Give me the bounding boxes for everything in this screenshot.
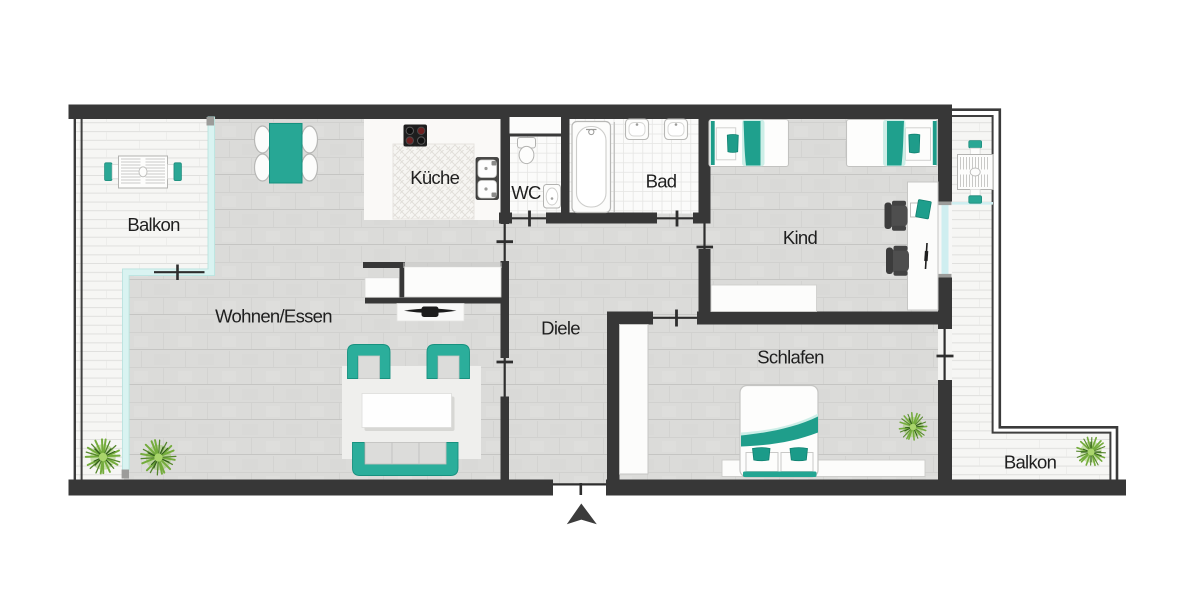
svg-text:Balkon: Balkon: [1004, 451, 1057, 472]
svg-text:Diele: Diele: [541, 317, 580, 338]
svg-text:Wohnen/Essen: Wohnen/Essen: [215, 305, 332, 326]
svg-text:Küche: Küche: [410, 167, 459, 188]
svg-text:WC: WC: [511, 182, 541, 203]
svg-text:Balkon: Balkon: [127, 214, 180, 235]
svg-text:Bad: Bad: [646, 171, 677, 192]
svg-text:Schlafen: Schlafen: [757, 347, 824, 368]
svg-text:Kind: Kind: [783, 227, 818, 248]
